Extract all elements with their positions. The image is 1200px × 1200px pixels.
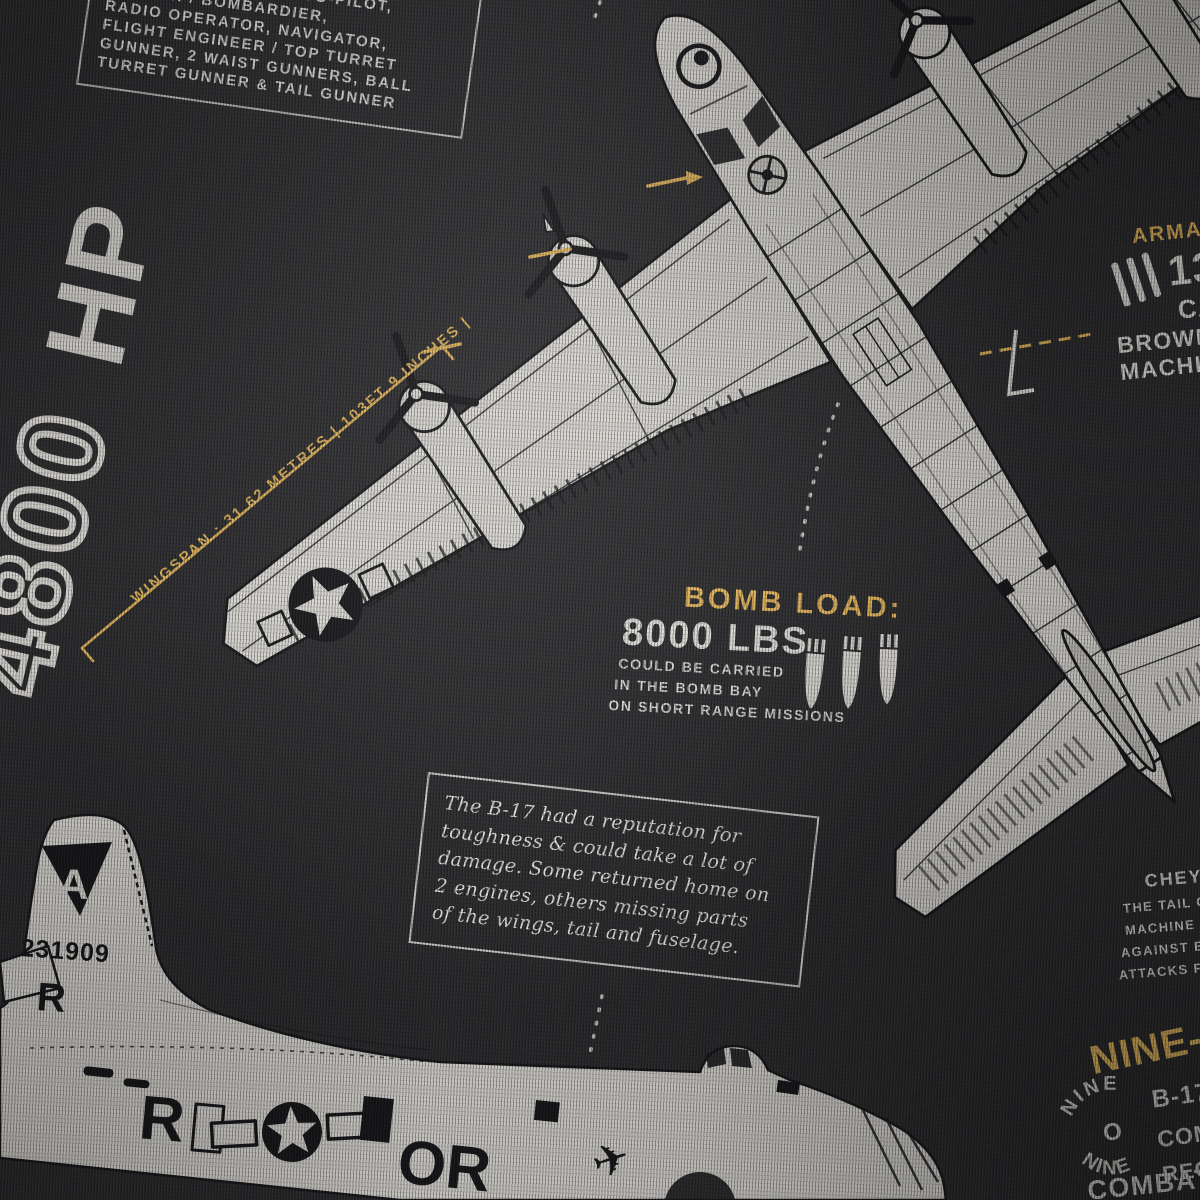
armament-bracket <box>1009 330 1034 394</box>
yellow-arrow-icon <box>424 171 703 352</box>
dotted-leader-line <box>589 2 838 1058</box>
leader-lines <box>0 0 1200 1200</box>
armament-leader-line <box>980 334 1092 354</box>
dimension-line <box>82 346 453 661</box>
tshirt-print-photo: A 231909 R R OR ✈ <box>0 0 1200 1200</box>
